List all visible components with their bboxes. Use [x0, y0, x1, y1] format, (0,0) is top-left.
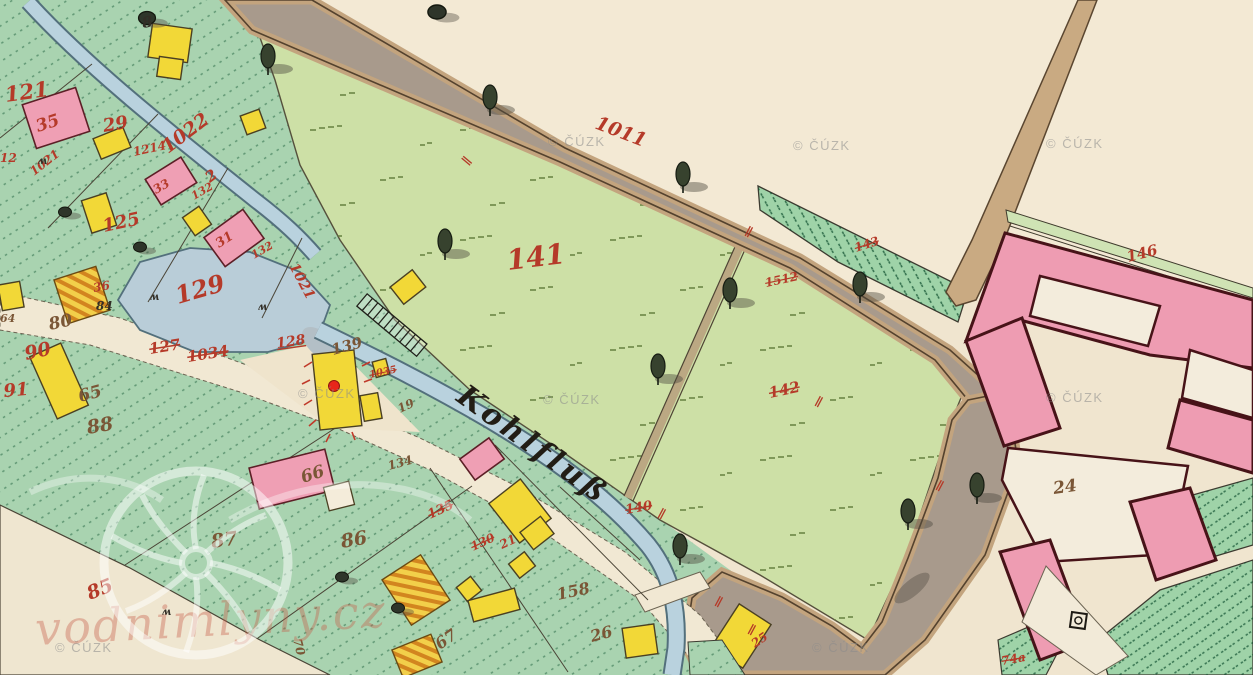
house-number-ʍ: ʍ — [258, 302, 267, 313]
parcel-label-141: 141 — [505, 237, 567, 277]
cuzk-watermark: © ČÚZK — [1046, 390, 1104, 405]
cadastral-map-canvas[interactable]: Kohlfluß 1213529102221214121021331321253… — [0, 0, 1253, 675]
house-number-ʍ: ʍ — [150, 292, 159, 303]
house-number-86: 86 — [338, 527, 369, 553]
house-number-ʍ: ʍ — [38, 156, 47, 167]
shrine-icon — [1070, 612, 1087, 629]
house-number-84: 84 — [96, 299, 113, 313]
cuzk-watermark: © ČÚZK — [298, 386, 356, 401]
house-number-88: 88 — [84, 413, 115, 439]
parcel-label-36: 36 — [92, 278, 112, 295]
cuzk-watermark: © ČÚZK — [1046, 136, 1104, 151]
house-number-24: 24 — [1051, 476, 1078, 499]
house-number-64: 64 — [0, 312, 15, 325]
parcel-label-91: 91 — [3, 379, 30, 402]
cuzk-watermark: © ČÚZK — [793, 138, 851, 153]
cuzk-watermark: © ČÚZK — [543, 392, 601, 407]
cuzk-watermark: © ČÚZK — [548, 134, 606, 149]
map-viewport[interactable]: Kohlfluß 1213529102221214121021331321253… — [0, 0, 1253, 675]
cuzk-watermark: © ČÚZK — [812, 640, 870, 655]
parcel-label-12: 12 — [0, 151, 17, 165]
